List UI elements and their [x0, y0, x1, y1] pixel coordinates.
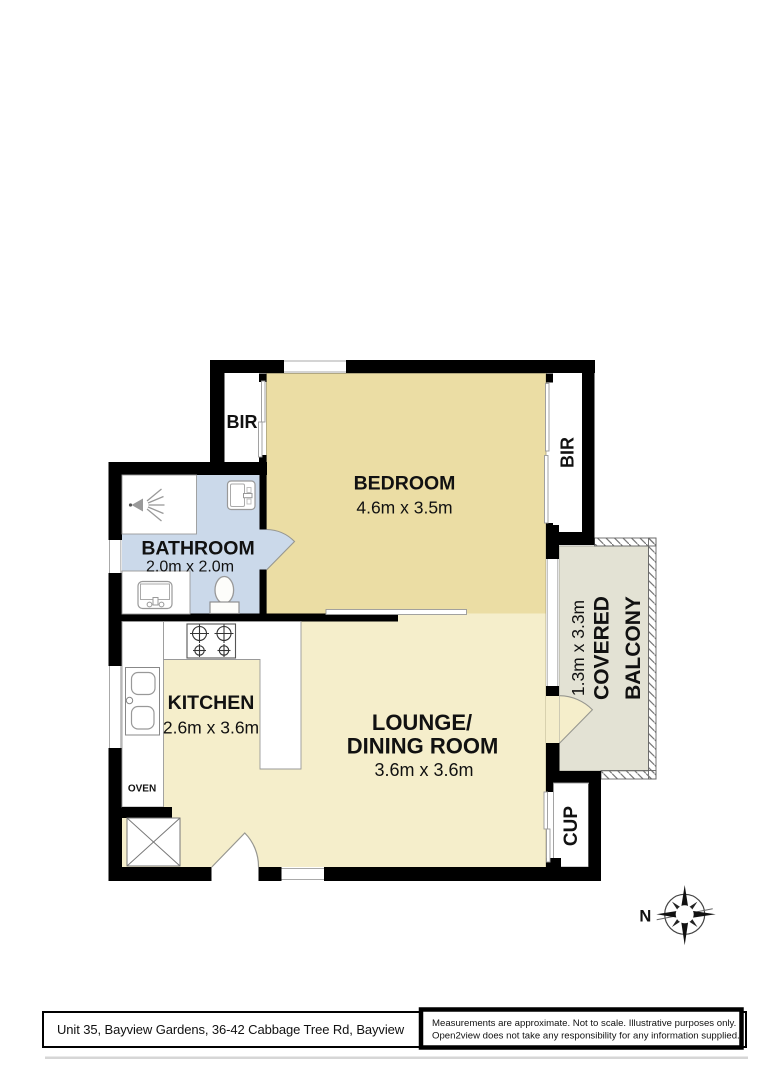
svg-text:BALCONY: BALCONY: [622, 596, 645, 700]
svg-text:BATHROOM: BATHROOM: [141, 538, 254, 560]
svg-text:OVEN: OVEN: [128, 784, 156, 795]
svg-text:Open2view does not take any re: Open2view does not take any responsibili…: [432, 1031, 740, 1042]
svg-text:DINING ROOM: DINING ROOM: [347, 734, 499, 759]
svg-text:KITCHEN: KITCHEN: [168, 692, 255, 714]
svg-text:CUP: CUP: [561, 806, 582, 846]
svg-text:LOUNGE/: LOUNGE/: [372, 710, 472, 735]
svg-text:COVERED: COVERED: [591, 596, 614, 700]
svg-text:1.3m x 3.3m: 1.3m x 3.3m: [568, 600, 588, 696]
svg-text:BIR: BIR: [558, 437, 578, 468]
svg-text:Unit 35, Bayview Gardens, 36-4: Unit 35, Bayview Gardens, 36-42 Cabbage …: [57, 1022, 405, 1037]
svg-text:Measurements are approximate.: Measurements are approximate. Not to sca…: [432, 1018, 736, 1029]
svg-text:2.0m x 2.0m: 2.0m x 2.0m: [146, 559, 234, 576]
svg-text:BIR: BIR: [227, 412, 258, 432]
svg-text:3.6m x 3.6m: 3.6m x 3.6m: [374, 760, 473, 780]
svg-text:2.6m x 3.6m: 2.6m x 3.6m: [163, 718, 259, 738]
svg-text:BEDROOM: BEDROOM: [354, 473, 456, 495]
svg-text:N: N: [639, 908, 651, 926]
svg-text:4.6m x 3.5m: 4.6m x 3.5m: [356, 498, 452, 518]
